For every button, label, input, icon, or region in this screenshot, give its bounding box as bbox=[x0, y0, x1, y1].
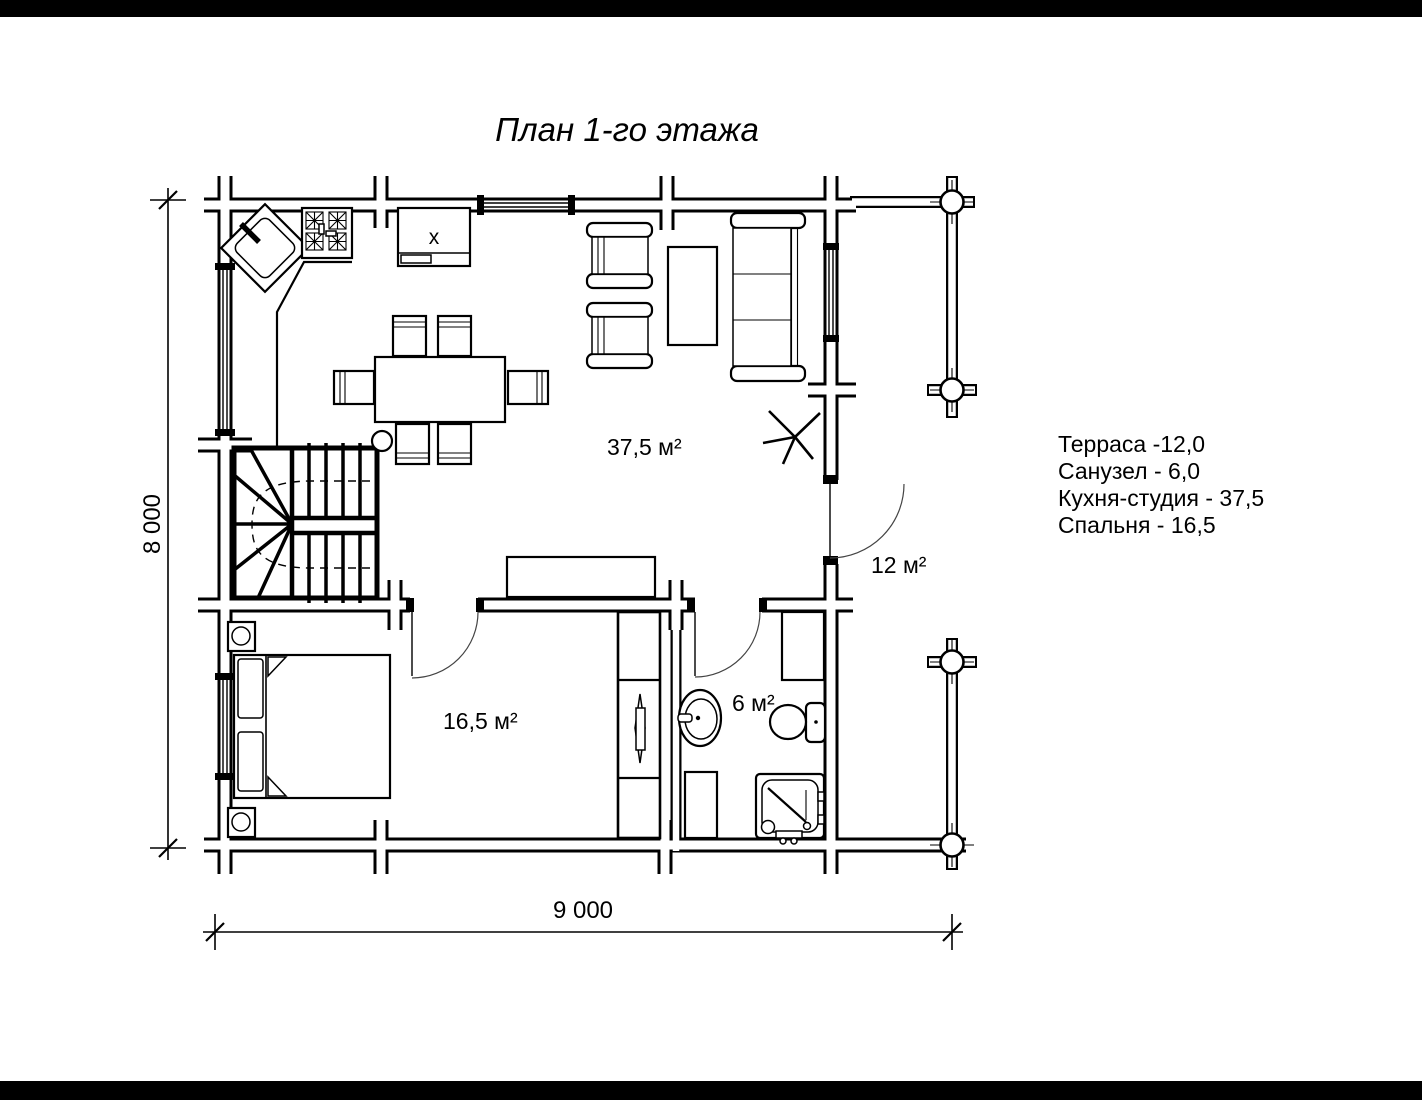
stair-newel-post bbox=[372, 431, 392, 451]
dimension-horizontal: 9 000 bbox=[203, 897, 963, 950]
dimension-vertical: 8 000 bbox=[139, 188, 186, 860]
kitchen-studio-area-label: 37,5 м² bbox=[607, 434, 682, 460]
wardrobe bbox=[618, 612, 660, 838]
terrace-column bbox=[941, 379, 964, 402]
kitchen-counter bbox=[277, 262, 352, 448]
sofa bbox=[731, 213, 805, 381]
page-title: План 1-го этажа bbox=[495, 111, 759, 148]
winder-treads bbox=[234, 448, 292, 598]
armchair bbox=[587, 303, 652, 368]
legend: Терраса -12,0 Санузел - 6,0 Кухня-студия… bbox=[1058, 431, 1264, 538]
dimension-width-label: 9 000 bbox=[553, 897, 613, 924]
dimension-height-label: 8 000 bbox=[139, 494, 166, 554]
nightstand bbox=[228, 622, 255, 651]
duct-box bbox=[782, 612, 824, 680]
floor-plan-page: План 1-го этажа bbox=[0, 0, 1422, 1100]
terrace-railing bbox=[850, 176, 977, 870]
bathroom-area-label: 6 м² bbox=[732, 690, 775, 716]
plant-icon bbox=[763, 411, 820, 464]
nightstand bbox=[228, 808, 255, 837]
shower-icon bbox=[756, 774, 824, 844]
toilet-icon bbox=[770, 703, 825, 742]
floor-plan-drawing: План 1-го этажа bbox=[0, 0, 1422, 1100]
bedroom-door bbox=[406, 598, 484, 678]
terrace-column bbox=[941, 651, 964, 674]
legend-item-bedroom: Спальня - 16,5 bbox=[1058, 512, 1216, 538]
terrace-area-label: 12 м² bbox=[871, 552, 927, 578]
staircase bbox=[234, 431, 392, 603]
stove-icon bbox=[302, 208, 352, 258]
pillow bbox=[238, 732, 263, 791]
legend-item-bathroom: Санузел - 6,0 bbox=[1058, 458, 1200, 484]
terrace-column bbox=[941, 191, 964, 214]
bathroom-area bbox=[678, 612, 825, 844]
letterbox-top bbox=[0, 0, 1422, 17]
legend-item-kitchen-studio: Кухня-студия - 37,5 bbox=[1058, 485, 1264, 511]
bed bbox=[234, 655, 390, 798]
letterbox-bottom bbox=[0, 1081, 1422, 1100]
washbasin-icon bbox=[678, 690, 721, 746]
terrace-column bbox=[941, 834, 964, 857]
bedroom-area-label: 16,5 м² bbox=[443, 708, 518, 734]
dining-set bbox=[334, 316, 548, 464]
appliance-mark: x bbox=[429, 226, 440, 249]
sideboard bbox=[507, 557, 655, 597]
cabinet-box bbox=[685, 772, 717, 838]
dining-table bbox=[375, 357, 505, 422]
armchair bbox=[587, 223, 652, 288]
living-room-area bbox=[507, 213, 820, 597]
coffee-table bbox=[668, 247, 717, 345]
kitchen-appliance-icon: x bbox=[398, 208, 470, 266]
pillow bbox=[238, 659, 263, 718]
legend-item-terrace: Терраса -12,0 bbox=[1058, 431, 1205, 457]
bathroom-door bbox=[687, 598, 767, 677]
